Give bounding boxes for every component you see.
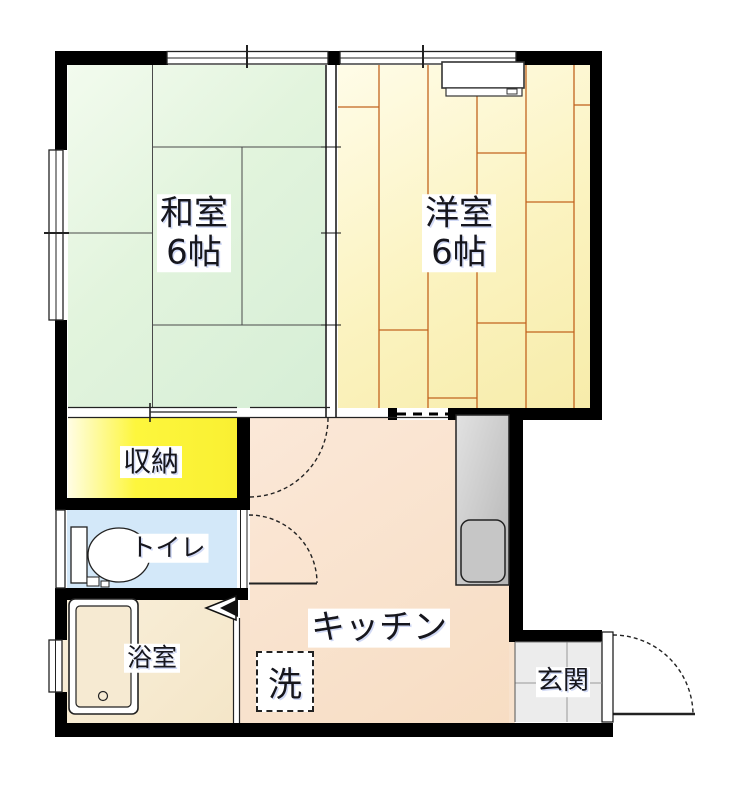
bathroom-label: 浴室 — [124, 644, 180, 673]
entrance-door-jamb — [602, 632, 613, 722]
washing-machine-box: 洗 — [256, 651, 314, 712]
kitchen-label: キッチン — [308, 609, 450, 648]
plan-linework — [0, 0, 732, 800]
toilet-window — [56, 510, 65, 588]
toilet-door-arc — [249, 515, 317, 583]
washing-machine-label: 洗 — [268, 657, 302, 706]
partition-wall — [321, 65, 341, 418]
kitchen-sink — [461, 520, 505, 582]
youshitsu-label: 洋室 6帖 — [422, 194, 496, 272]
closet-label: 収納 — [120, 446, 182, 478]
washitsu-label: 和室 6帖 — [157, 194, 231, 272]
floor-plan: 和室 6帖 洋室 6帖 収納 トイレ 浴室 キッチン 玄関 洗 — [0, 0, 732, 800]
washitsu-top-window — [167, 45, 328, 68]
toilet-label: トイレ — [127, 534, 208, 563]
bathroom-wall-and-door — [206, 596, 240, 723]
genkan-label: 玄関 — [536, 667, 590, 697]
entrance-door-arc — [613, 635, 693, 715]
bathroom-window — [49, 640, 62, 692]
dashed-opening — [397, 408, 448, 420]
toilet-doorway — [241, 510, 248, 588]
kitchen-washitsu-door-arc — [249, 418, 328, 497]
air-conditioner — [442, 62, 524, 96]
washitsu-left-window — [44, 150, 69, 320]
kitchen-counter — [456, 415, 509, 585]
